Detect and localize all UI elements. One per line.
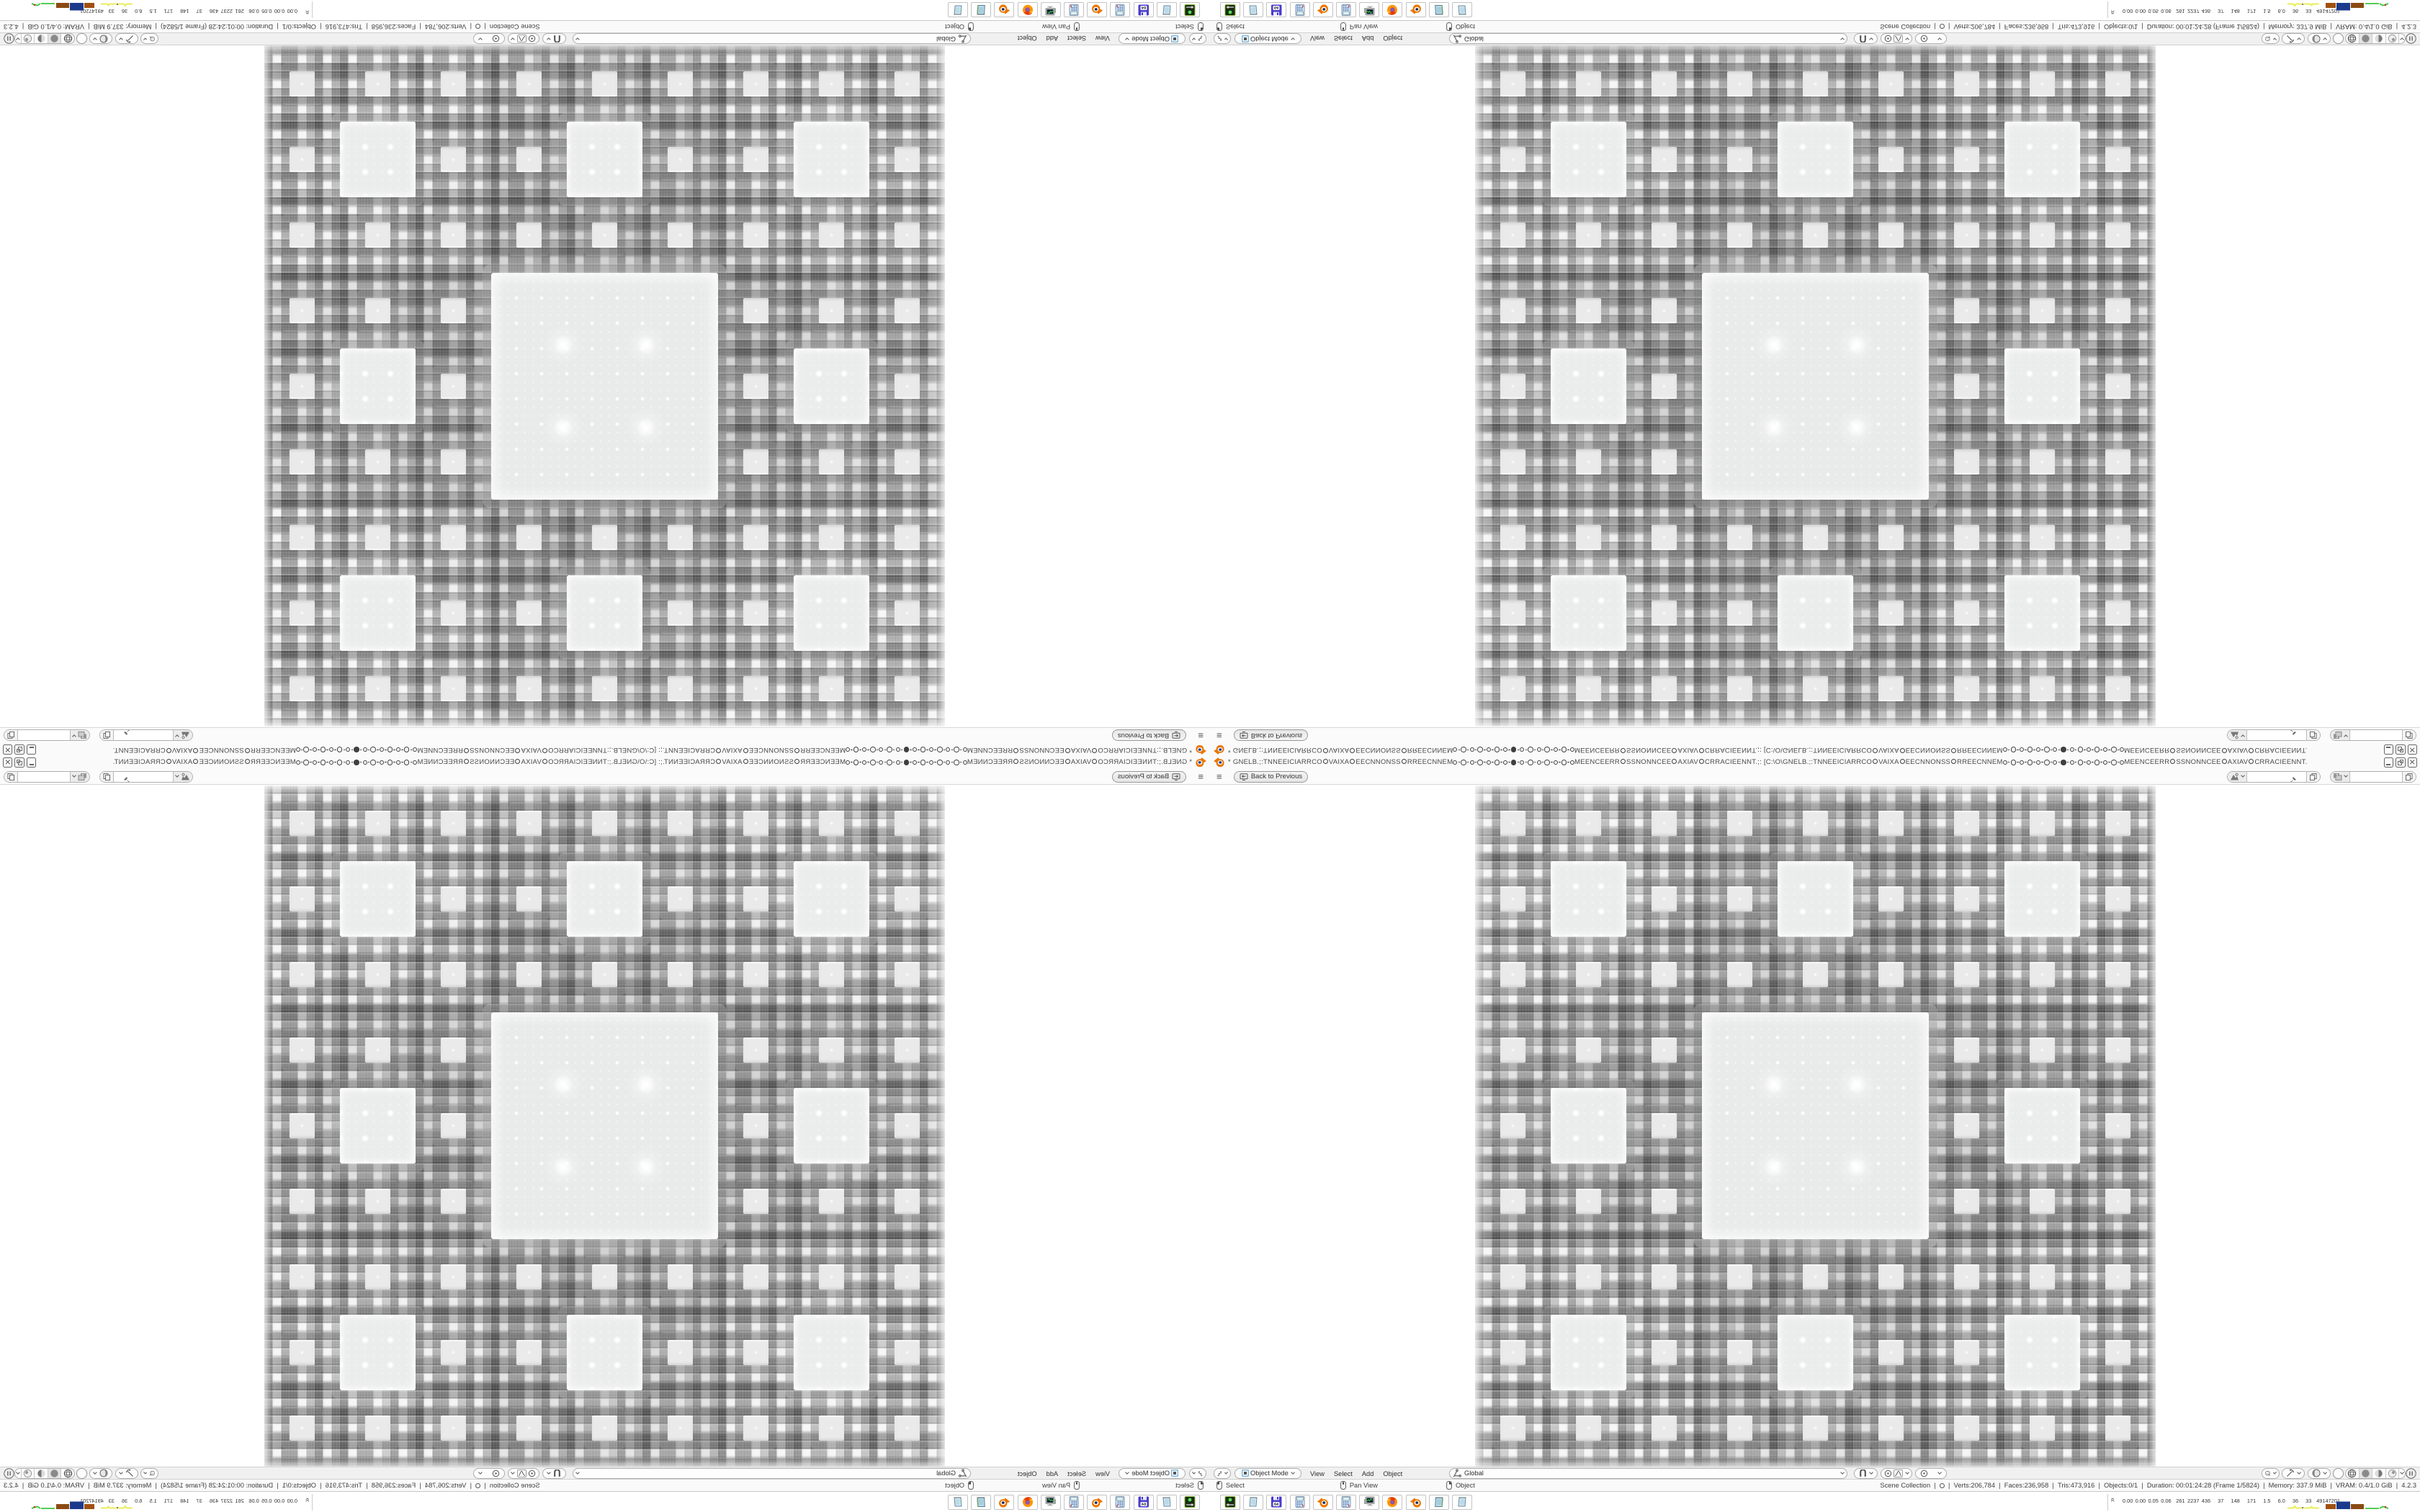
svg-text:64: 64 xyxy=(1141,5,1146,9)
svg-text:64: 64 xyxy=(1274,1503,1279,1507)
svg-text:64: 64 xyxy=(1274,5,1279,9)
svg-text:64: 64 xyxy=(1141,1503,1146,1507)
